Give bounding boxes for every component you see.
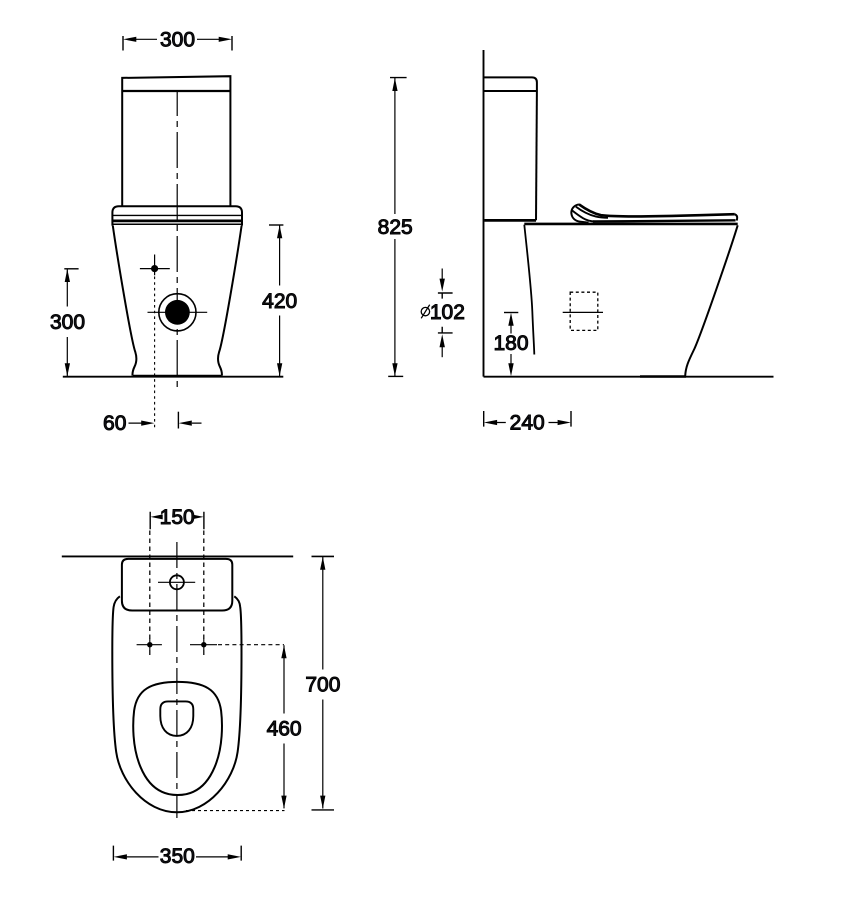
- svg-text:460: 460: [267, 717, 302, 740]
- svg-text:60: 60: [103, 412, 126, 435]
- svg-text:240: 240: [510, 412, 545, 435]
- svg-text:825: 825: [378, 216, 413, 239]
- svg-text:300: 300: [50, 311, 85, 334]
- svg-text:300: 300: [160, 28, 195, 51]
- svg-text:150: 150: [160, 506, 195, 529]
- svg-text:420: 420: [262, 290, 297, 313]
- svg-text:180: 180: [493, 332, 528, 355]
- svg-text:350: 350: [160, 845, 195, 868]
- svg-text:700: 700: [305, 673, 340, 696]
- svg-text:102: 102: [430, 301, 465, 324]
